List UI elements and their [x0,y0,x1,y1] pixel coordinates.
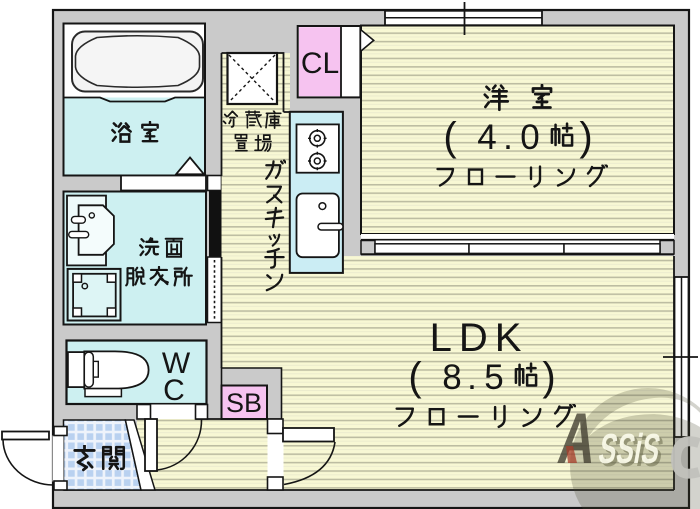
svg-text:(: ( [408,355,422,399]
svg-text:C: C [163,374,185,407]
svg-text:0: 0 [520,118,539,157]
svg-text:): ) [579,115,592,159]
svg-text:8: 8 [442,358,461,397]
svg-text:SSiS: SSiS [595,425,664,472]
svg-text:(: ( [443,115,457,159]
svg-text:4: 4 [477,118,496,157]
svg-text:.: . [503,118,513,157]
svg-text:CL: CL [301,47,339,80]
svg-text:.: . [467,358,477,397]
svg-text:SB: SB [226,388,262,418]
svg-text:5: 5 [484,358,503,397]
svg-text:): ) [542,355,555,399]
svg-text:LDK: LDK [430,316,529,360]
